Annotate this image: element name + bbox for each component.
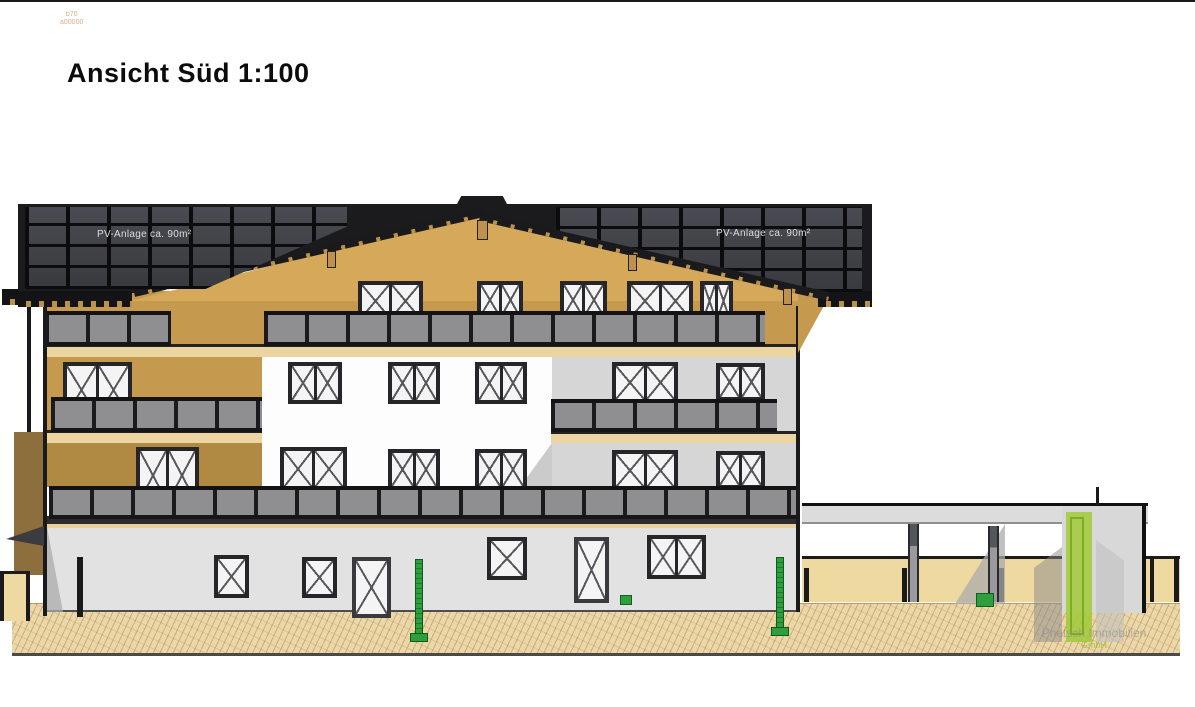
glass-pane: [503, 366, 524, 400]
glass-pane: [578, 541, 605, 599]
roof-bracket: [628, 254, 637, 271]
first-floor-window: [612, 450, 678, 491]
ground-window: [214, 555, 249, 598]
page-title: Ansicht Süd 1:100: [67, 58, 310, 89]
elevation-drawing: b70 a00000 Ansicht Süd 1:100 PV-Anlage c…: [0, 0, 1195, 707]
left-balcony-edge: [27, 295, 31, 435]
corner-stamp-line2: a00000: [60, 19, 83, 27]
glass-pane: [416, 453, 437, 486]
balcony-railing-first-floor: [49, 486, 798, 519]
roof-vent: [1096, 487, 1099, 505]
roof-bracket: [327, 251, 336, 268]
gate-post: [77, 557, 83, 617]
balcony-railing-attic: [264, 311, 765, 346]
glass-pane: [416, 366, 437, 400]
glass-pane: [392, 366, 413, 400]
glass-pane: [720, 367, 739, 397]
glass-pane: [720, 455, 739, 485]
glass-pane: [392, 453, 413, 486]
gutter-end: [2, 289, 19, 305]
survey-marker: [620, 595, 632, 605]
wall-post: [902, 568, 907, 602]
wall-post: [1150, 556, 1154, 602]
green-bollard: [415, 559, 423, 634]
glass-pane: [356, 561, 387, 614]
glass-pane: [218, 559, 245, 594]
glass-pane: [678, 539, 702, 575]
entrance-door: [352, 557, 391, 618]
logo-company-name: Prietsch Immobilien: [1014, 626, 1174, 640]
entrance-door: [574, 537, 609, 603]
pv-label-left: PV-Anlage ca. 90m²: [97, 229, 191, 240]
upper-window: [388, 362, 440, 404]
pv-label-right: PV-Anlage ca. 90m²: [716, 228, 810, 239]
glass-pane: [491, 541, 523, 576]
glass-pane: [292, 366, 314, 400]
side-window: [18, 306, 27, 317]
wall-post: [26, 571, 30, 621]
green-bollard-base: [771, 627, 789, 636]
roof-bracket: [783, 288, 792, 305]
wall-post: [1174, 556, 1179, 602]
downspout: [43, 298, 47, 616]
upper-window: [288, 362, 342, 404]
corner-stamp-line1: b70: [60, 11, 83, 19]
first-floor-window: [475, 449, 527, 490]
green-bollard: [776, 557, 784, 628]
ground-window: [302, 557, 337, 598]
corner-stamp: b70 a00000: [60, 11, 83, 27]
carport-post: [908, 524, 919, 602]
side-wall: [14, 432, 43, 575]
survey-marker: [976, 593, 994, 607]
glass-pane: [503, 453, 524, 486]
floor-band-right: [551, 431, 798, 443]
glass-pane: [306, 561, 333, 594]
upper-window: [612, 362, 678, 403]
glass-pane: [616, 454, 644, 487]
balcony-railing-attic-left: [45, 311, 171, 346]
glass-pane: [479, 453, 500, 486]
wall-post: [0, 571, 4, 621]
carport-post: [988, 526, 999, 602]
glass-pane: [647, 366, 675, 399]
page-top-rule: [0, 0, 1195, 2]
upper-window: [475, 362, 527, 404]
glass-pane: [479, 366, 500, 400]
glass-pane: [284, 451, 312, 487]
first-floor-window: [280, 447, 347, 491]
logo-watermark: Prietsch Immobilien GmbH: [1014, 626, 1174, 650]
glass-pane: [317, 366, 339, 400]
balcony-railing-upper-left: [51, 397, 262, 432]
eave-left: [18, 291, 132, 307]
glass-pane: [742, 367, 761, 397]
logo-bar-green-inner: [1070, 517, 1084, 635]
glass-pane: [651, 539, 675, 575]
logo-company-suffix: GmbH: [1014, 640, 1174, 650]
ground-window: [487, 537, 527, 580]
wall-post: [804, 568, 809, 602]
glass-pane: [315, 451, 343, 487]
glass-pane: [742, 455, 761, 485]
first-floor-window: [716, 451, 765, 489]
ground-window: [647, 535, 706, 579]
first-floor-window: [388, 449, 440, 490]
ridge-cap: [456, 196, 508, 206]
glass-pane: [616, 366, 644, 399]
roof-bracket: [477, 220, 488, 240]
upper-window: [716, 363, 765, 401]
green-bollard-base: [410, 633, 428, 642]
glass-pane: [647, 454, 675, 487]
balcony-railing-upper-right: [551, 399, 777, 432]
